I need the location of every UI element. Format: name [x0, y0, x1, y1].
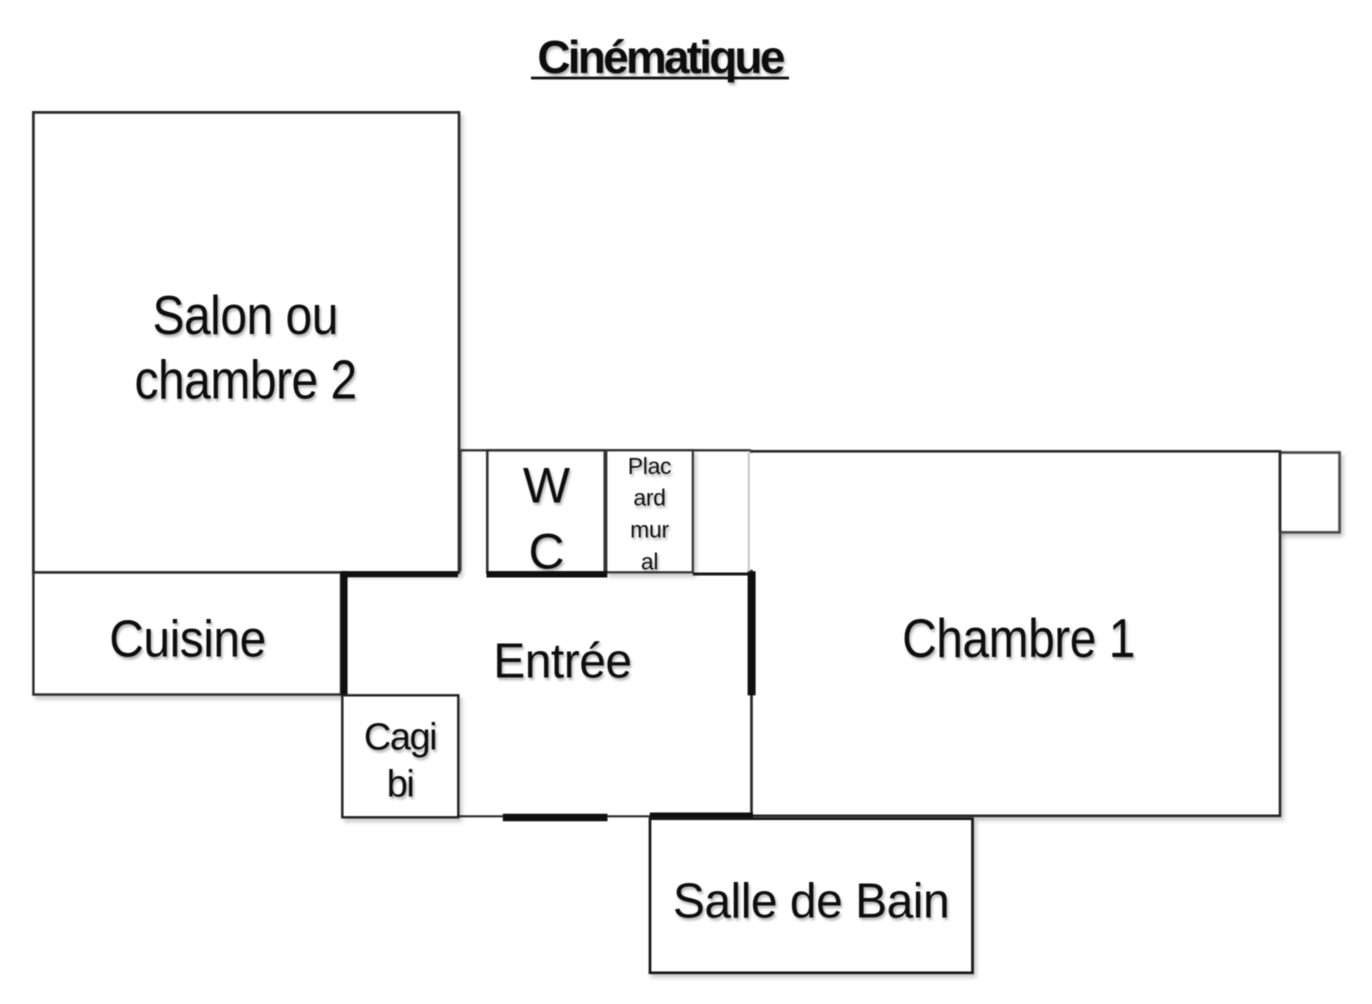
svg-text:Salle de Bain: Salle de Bain	[673, 874, 949, 929]
svg-text:C: C	[528, 523, 564, 579]
svg-text:Cuisine: Cuisine	[109, 610, 266, 668]
svg-text:Salon ou: Salon ou	[152, 284, 337, 346]
svg-text:Cagi: Cagi	[364, 716, 436, 758]
svg-text:W: W	[523, 458, 571, 514]
svg-text:chambre 2: chambre 2	[134, 349, 356, 411]
svg-text:bi: bi	[387, 764, 414, 806]
svg-text:Cinématique: Cinématique	[537, 31, 784, 83]
svg-text:Chambre 1: Chambre 1	[902, 607, 1135, 669]
svg-text:ard: ard	[633, 485, 665, 511]
svg-text:al: al	[641, 548, 658, 574]
svg-text:mur: mur	[630, 517, 669, 543]
svg-text:Plac: Plac	[628, 453, 672, 479]
svg-text:Entrée: Entrée	[493, 634, 631, 689]
